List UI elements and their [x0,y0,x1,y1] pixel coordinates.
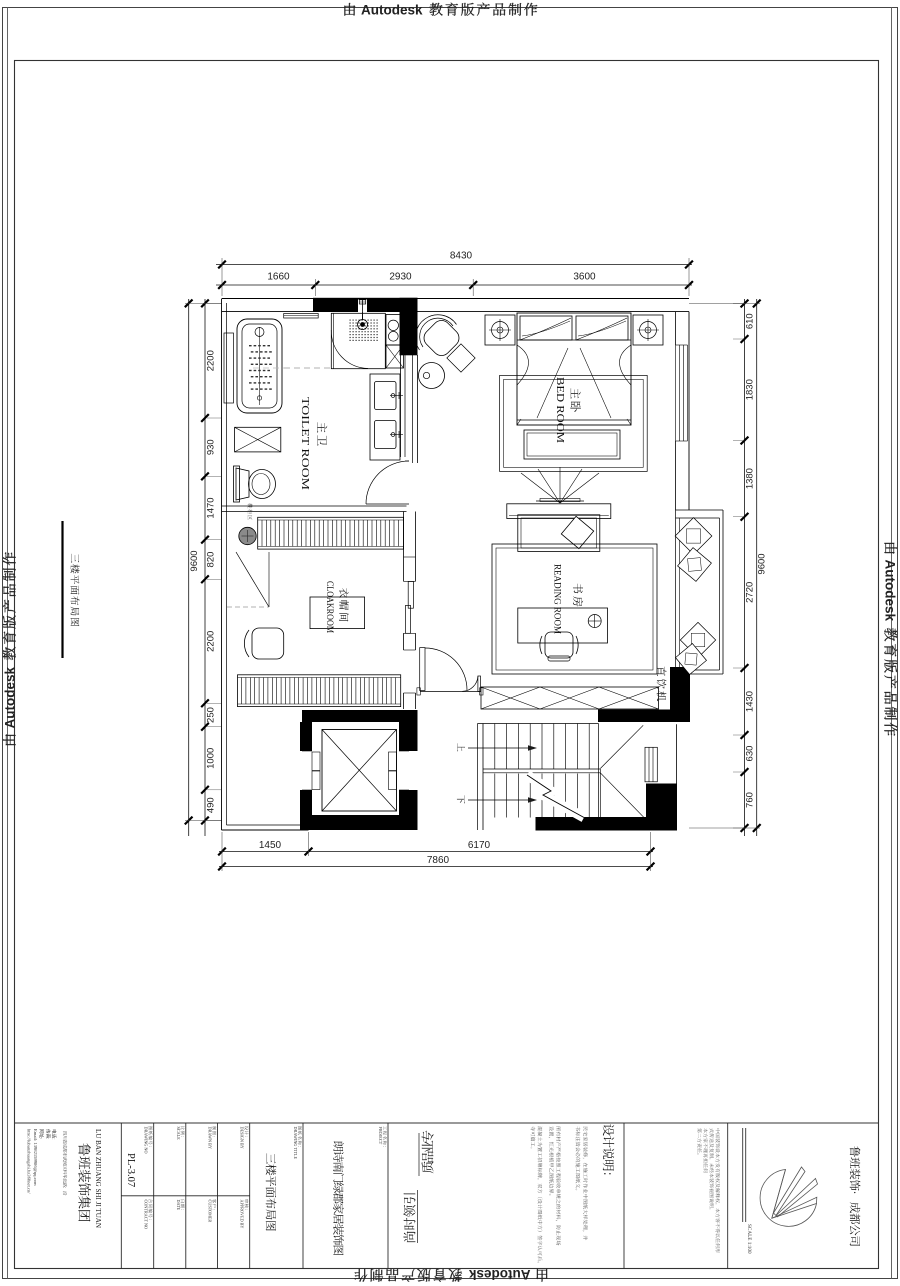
svg-text:DESIGN BY: DESIGN BY [240,1127,245,1149]
svg-text:CONTRACT NO: CONTRACT NO [144,1200,149,1230]
svg-text:1380: 1380 [745,468,756,489]
svg-text:传真:: 传真: [44,1129,51,1139]
svg-text:DRAWN BY: DRAWN BY [208,1127,213,1149]
svg-text:DRAWING NO: DRAWING NO [144,1127,149,1154]
svg-text:TOILET ROOM: TOILET ROOM [299,397,310,491]
svg-text:READING ROOM: READING ROOM [553,564,563,634]
svg-text:2200: 2200 [206,350,217,371]
svg-text:490: 490 [206,797,217,813]
svg-text:820: 820 [206,552,217,568]
svg-text:250: 250 [206,707,217,723]
svg-text:1450: 1450 [259,840,282,851]
svg-text:SCALE: SCALE [176,1127,181,1141]
svg-text:760: 760 [745,792,756,808]
svg-text:6170: 6170 [468,840,491,851]
svg-text:2200: 2200 [206,631,217,652]
svg-text:LU BAN ZHUANG SHI JI TUAN: LU BAN ZHUANG SHI JI TUAN [94,1129,102,1228]
svg-text:9600: 9600 [757,553,768,574]
svg-text:DATE: DATE [176,1200,181,1211]
svg-text:610: 610 [745,313,756,329]
svg-text:Email: 13982159986@qq.com: Email: 13982159986@qq.com [33,1129,38,1186]
svg-text:1830: 1830 [745,379,756,400]
svg-text:1470: 1470 [206,497,217,518]
svg-text:APPROVED BY: APPROVED BY [240,1200,245,1229]
svg-text:PROJECT: PROJECT [378,1127,383,1145]
svg-text:PL-3.07: PL-3.07 [125,1153,136,1187]
svg-text:3600: 3600 [573,272,596,283]
svg-text:1000: 1000 [206,748,217,769]
svg-text:DRAWING TITLE: DRAWING TITLE [293,1127,298,1160]
svg-text:630: 630 [745,746,756,762]
svg-text:网址:: 网址: [38,1129,45,1139]
svg-text:SCALE 1:100: SCALE 1:100 [746,1224,752,1254]
svg-text:2720: 2720 [745,582,756,603]
svg-text:Autodesk: Autodesk [2,667,17,729]
svg-text:电话:: 电话: [51,1129,58,1139]
svg-text:Autodesk: Autodesk [361,2,423,17]
svg-text:BED ROOM: BED ROOM [554,377,565,444]
svg-text:9600: 9600 [189,550,200,571]
svg-text:Autodesk: Autodesk [883,560,898,622]
svg-text:8430: 8430 [450,251,473,262]
svg-text:1430: 1430 [745,691,756,712]
svg-text:CUSTOMER: CUSTOMER [208,1200,213,1223]
svg-text:2930: 2930 [389,272,412,283]
svg-text:Autodesk: Autodesk [469,1267,531,1282]
svg-text:htto://lubanzhuangshi.bz360net: htto://lubanzhuangshi.bz360net.cn/ [27,1129,32,1194]
svg-text:CLOAKROOM: CLOAKROOM [325,581,335,633]
svg-text:1660: 1660 [267,272,290,283]
svg-text:930: 930 [206,439,217,455]
svg-text:7860: 7860 [427,855,450,866]
